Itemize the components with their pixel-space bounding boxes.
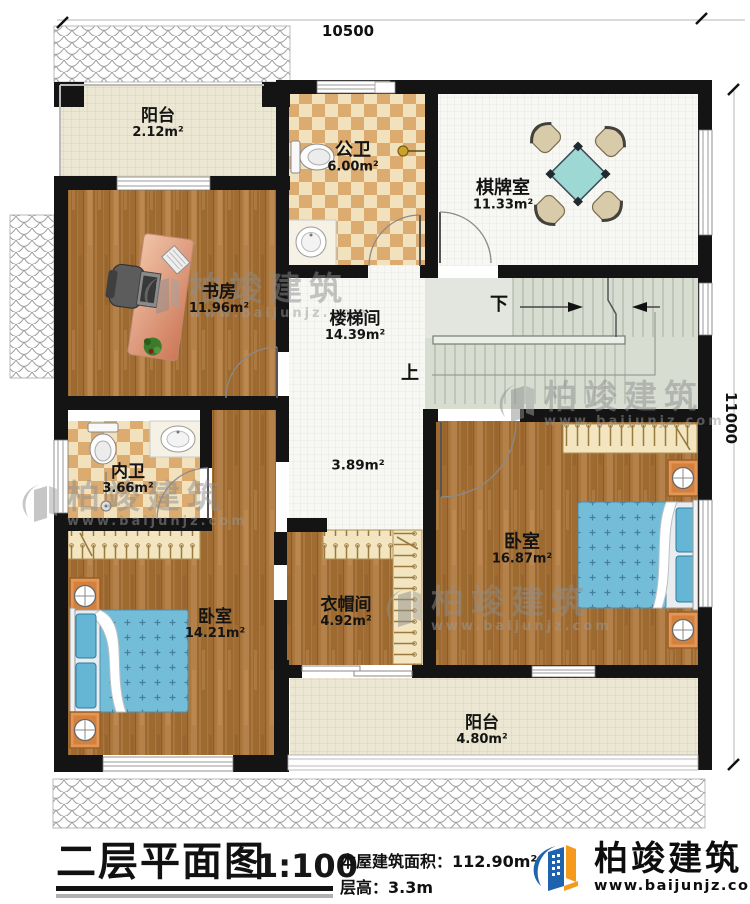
bed [70,608,188,714]
toilet-tank [88,423,118,432]
window [699,500,712,607]
sliding-door [302,666,412,676]
title-underline [56,886,333,891]
nightstand [70,712,100,748]
window [699,130,712,235]
window [532,666,595,677]
window [103,757,233,771]
pillow [76,663,96,708]
nightstand [668,612,698,648]
closet [393,530,422,664]
nightstand [668,460,698,496]
building-area-label: 本屋建筑面积：112.90m² [340,848,537,872]
brand-block: 柏竣建筑 www.baijunjz.com [528,838,750,898]
pillow [676,508,695,552]
brand-name: 柏竣建筑 [594,842,750,876]
window [54,440,68,513]
window [699,283,712,335]
pillow [76,614,96,658]
closet [323,530,394,559]
stair-handrail [433,336,625,344]
brand-website: www.baijunjz.com [594,879,750,894]
toilet-tank [291,141,300,173]
window [117,177,210,190]
wardrobe [68,530,200,559]
pillow [676,556,695,602]
floor-height-label: 层高：3.3m [340,874,433,898]
plan-title: 二层平面图 [56,842,266,882]
balcony-railing [288,755,698,770]
floorplan-canvas: 10500 11000 阳台 2.12m² 公卫 6.00m² 棋牌室 11.3… [0,0,750,904]
bed [578,500,698,610]
brand-logo-icon [528,838,590,898]
floorplan-drawing [0,0,750,904]
title-underline-shadow [56,894,333,898]
title-block: 二层平面图 1:100 本屋建筑面积：112.90m² 层高：3.3m 柏竣建筑… [0,836,750,904]
door-knob [398,146,408,156]
